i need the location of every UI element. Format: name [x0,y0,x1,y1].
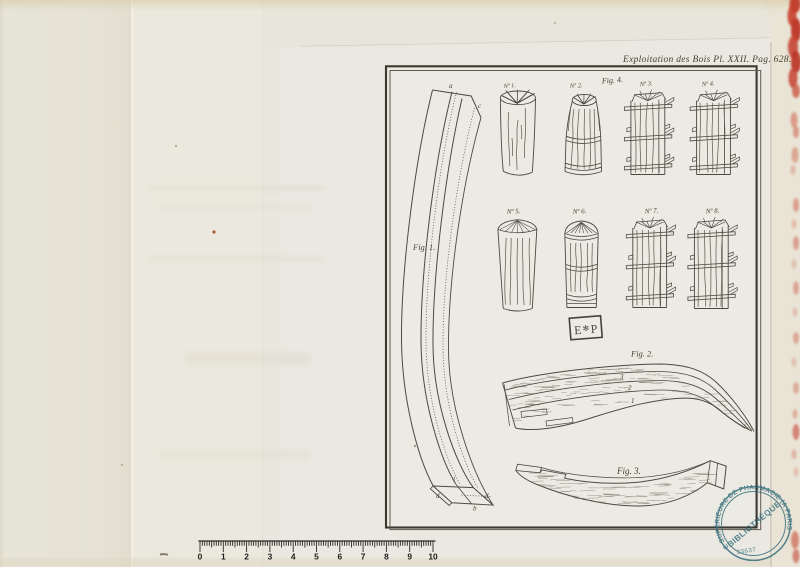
svg-text:9: 9 [407,552,412,562]
svg-text:6: 6 [337,552,342,562]
svg-text:Nº 1.: Nº 1. [503,83,516,90]
svg-text:3: 3 [268,552,273,562]
svg-text:d: d [485,492,489,500]
svg-text:Nº 7.: Nº 7. [644,208,659,216]
svg-text:4: 4 [291,552,296,562]
svg-text:2: 2 [244,552,249,562]
svg-text:E: E [574,323,582,338]
svg-text:l: l [453,476,455,484]
svg-text:✻: ✻ [582,324,590,334]
svg-text:b: b [473,505,477,513]
svg-text:Fig. 1.: Fig. 1. [412,242,435,252]
svg-text:5: 5 [314,552,319,562]
svg-text:Fig. 2.: Fig. 2. [630,349,653,359]
svg-text:Exploitation des Bois Pl. XXII: Exploitation des Bois Pl. XXII. Pag. 628… [622,55,792,65]
svg-text:a: a [449,82,453,90]
svg-text:1: 1 [221,552,226,562]
svg-text:Nº 6.: Nº 6. [572,208,587,216]
svg-text:10: 10 [428,552,438,562]
svg-text:2: 2 [628,384,632,392]
svg-text:1: 1 [631,397,635,405]
svg-text:Nº 5.: Nº 5. [506,208,521,216]
svg-text:Nº 2.: Nº 2. [569,82,583,90]
svg-text:7: 7 [361,552,366,562]
svg-text:Nº 4.: Nº 4. [701,80,715,88]
svg-text:Nº 3.: Nº 3. [639,80,653,88]
svg-text:d: d [436,492,440,500]
svg-text:Fig. 4.: Fig. 4. [601,75,624,86]
svg-text:0: 0 [198,552,203,562]
svg-text:8: 8 [384,552,389,562]
svg-text:Nº 8.: Nº 8. [705,208,720,216]
svg-text:Fig. 3.: Fig. 3. [616,466,641,476]
